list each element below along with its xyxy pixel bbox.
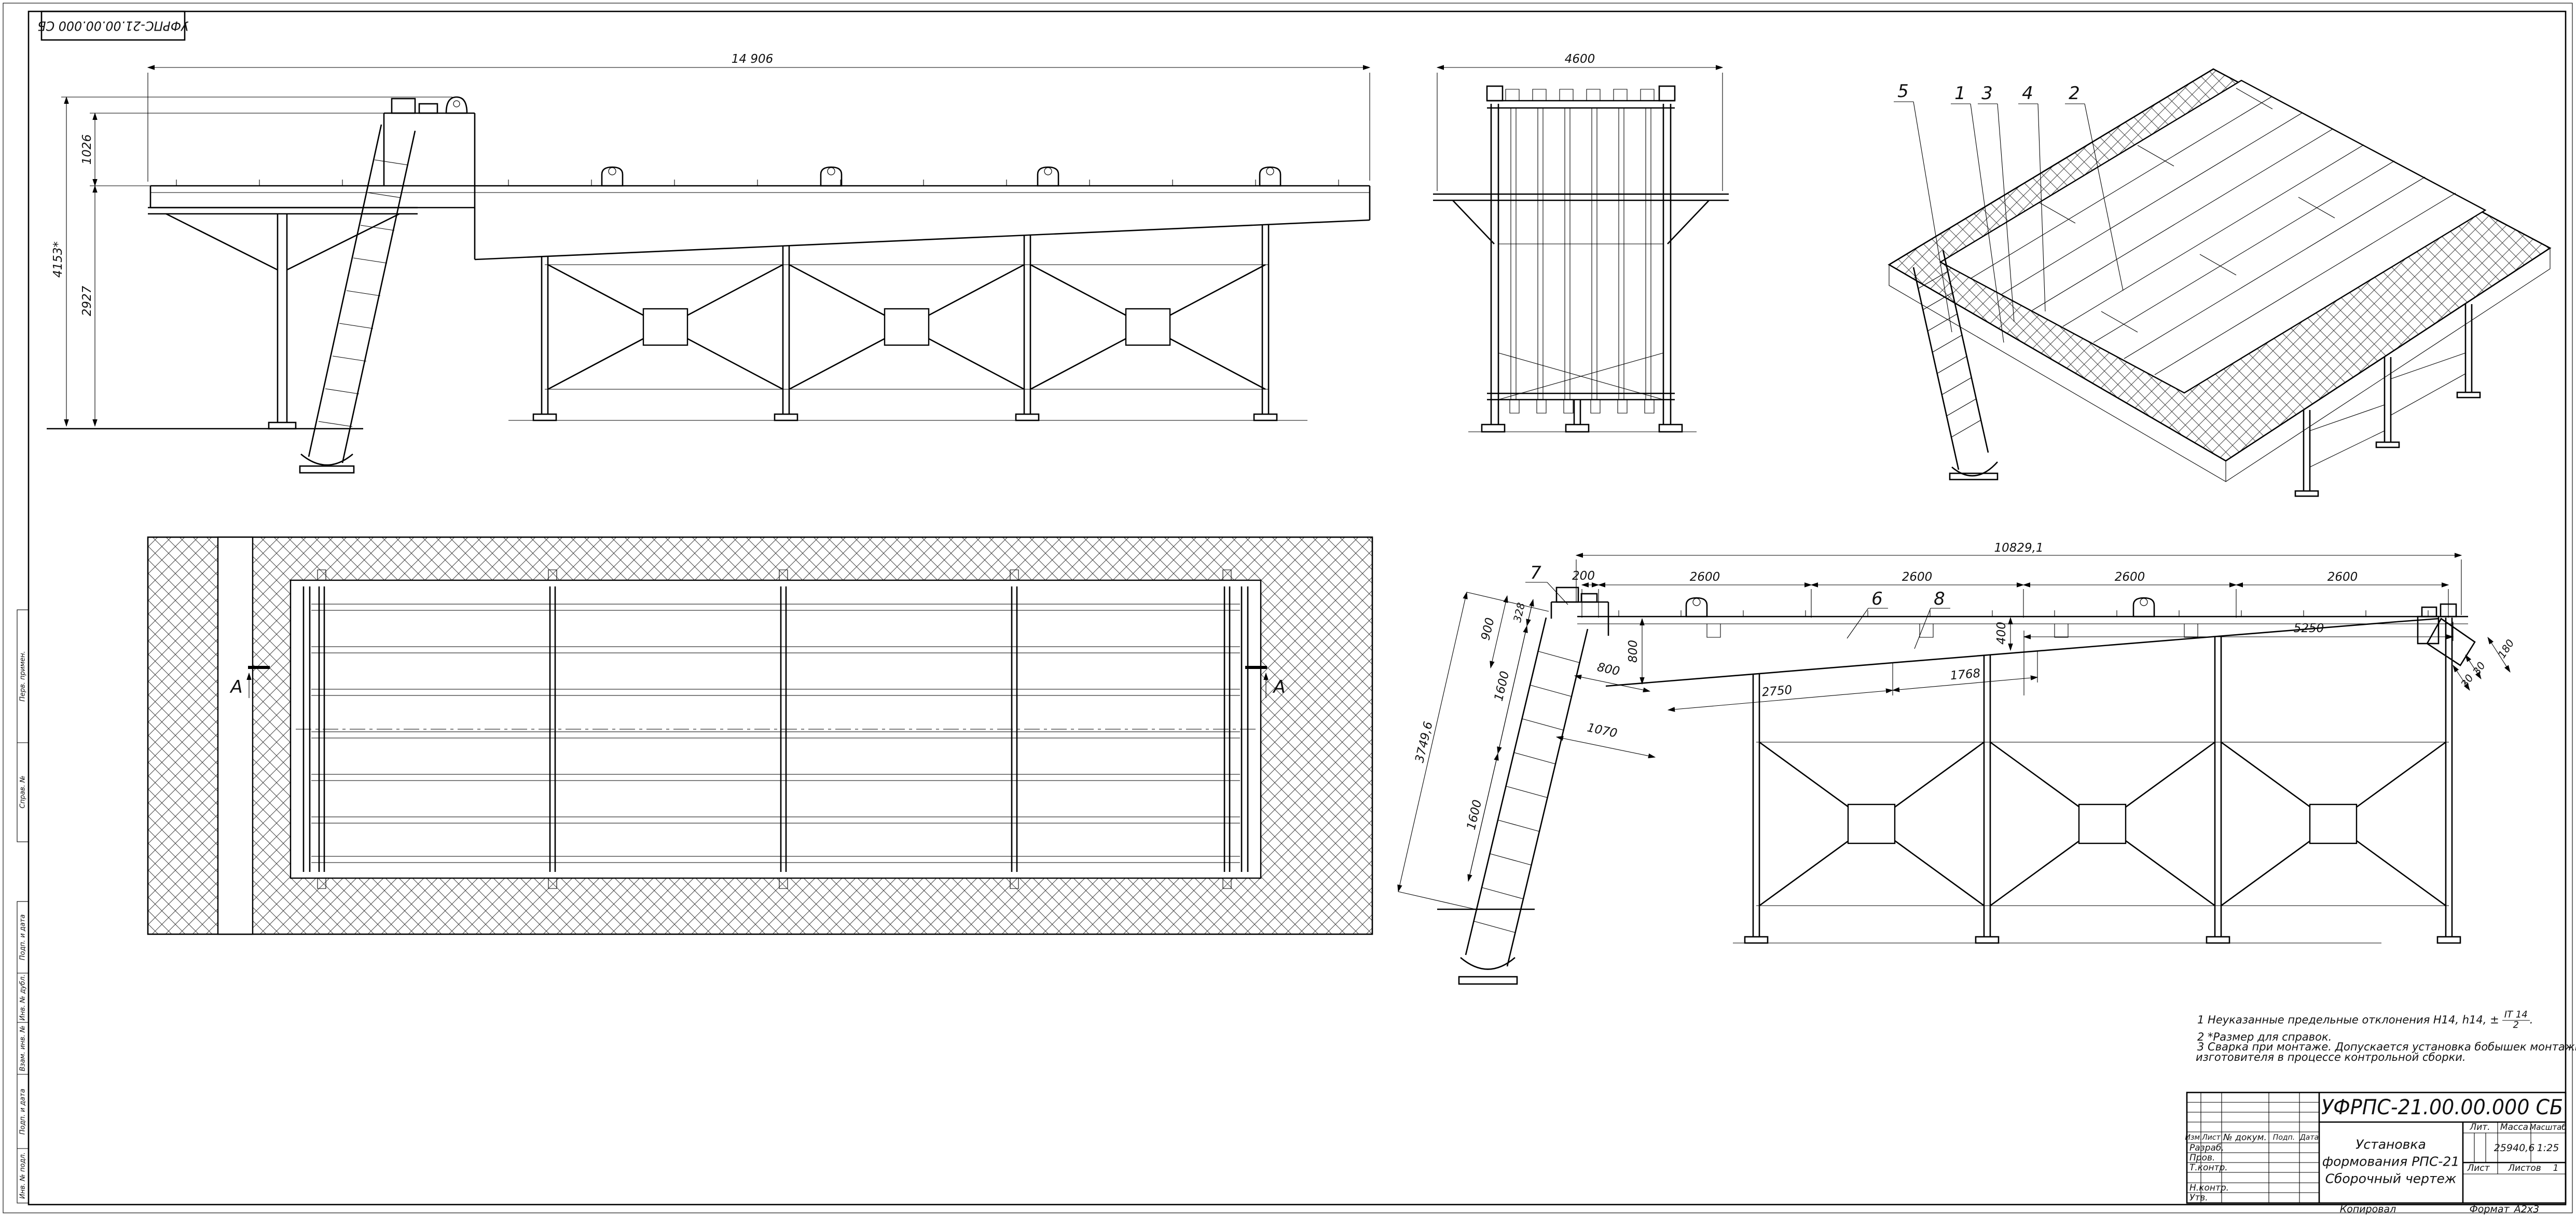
note-1: 1 Неуказанные предельные отклонения Н14,… bbox=[2197, 1010, 2533, 1031]
section-letter-right: А bbox=[1273, 677, 1285, 698]
margin-label-perv-primen: Перв. примен. bbox=[19, 651, 27, 702]
tb-row-prov: Пров. bbox=[2189, 1153, 2215, 1163]
dim-800-vert-label: 800 bbox=[1627, 640, 1640, 663]
tb-col-doc: № докум. bbox=[2223, 1132, 2267, 1143]
tb-row-razrab: Разраб. bbox=[2189, 1143, 2224, 1153]
callout-2: 2 bbox=[2069, 83, 2080, 104]
dim-total-label: 10829,1 bbox=[1994, 541, 2043, 555]
drawing-sheet: УФРПС-21.00.00.000 СБ Перв. примен. Спра… bbox=[0, 0, 2576, 1216]
tb-listov-label: Листов bbox=[2508, 1163, 2541, 1173]
callout-3: 3 bbox=[1981, 83, 1993, 104]
callout-7: 7 bbox=[1530, 563, 1541, 583]
callout-1: 1 bbox=[1954, 83, 1966, 104]
dim-2600-4-label: 2600 bbox=[2327, 570, 2358, 584]
dim-1768-label: 1768 bbox=[1950, 666, 1981, 682]
callout-8: 8 bbox=[1934, 589, 1945, 609]
dim-5250-label: 5250 bbox=[2294, 622, 2324, 635]
dim-400-label: 400 bbox=[1995, 622, 2008, 645]
dim-side-length-label: 14 906 bbox=[732, 52, 773, 66]
tb-lit-label: Лит. bbox=[2470, 1122, 2490, 1132]
note-1-fraction: IT 142 bbox=[2502, 1010, 2530, 1031]
dim-side-upper-label: 1026 bbox=[80, 134, 94, 165]
tb-name-line2: формования РПС-21 bbox=[2322, 1154, 2460, 1169]
tb-masshtab-label: Масштаб bbox=[2529, 1123, 2566, 1132]
tb-listov-value: 1 bbox=[2553, 1163, 2559, 1173]
callout-4: 4 bbox=[2022, 83, 2033, 104]
dim-2600-2-label: 2600 bbox=[1902, 570, 1933, 584]
section-letter-left: А bbox=[230, 677, 242, 698]
tb-designation: УФРПС-21.00.00.000 СБ bbox=[2321, 1096, 2563, 1119]
tb-col-podp: Подп. bbox=[2273, 1133, 2295, 1142]
side-elevation-view bbox=[47, 67, 1370, 473]
callout-6: 6 bbox=[1871, 589, 1883, 609]
corner-stamp: УФРПС-21.00.00.000 СБ bbox=[37, 19, 188, 34]
note-3-line2: изготовителя в процессе контрольной сбор… bbox=[2196, 1051, 2466, 1063]
dim-side-lower-label: 2927 bbox=[80, 286, 94, 317]
dim-2600-1-label: 2600 bbox=[1690, 570, 1720, 584]
callout-5: 5 bbox=[1897, 81, 1909, 102]
dim-2750-label: 2750 bbox=[1761, 683, 1793, 699]
margin-label-vzam-inv: Взам. инв. № bbox=[19, 1026, 27, 1071]
margin-label-sprav-no: Справ. № bbox=[19, 775, 27, 808]
tb-row-nkontr: Н.контр. bbox=[2189, 1183, 2229, 1193]
dim-200-label: 200 bbox=[1572, 569, 1595, 583]
footer-format-value: А2х3 bbox=[2514, 1204, 2539, 1215]
tb-row-tkontr: Т.контр. bbox=[2189, 1163, 2228, 1173]
dim-end-width-label: 4600 bbox=[1565, 52, 1595, 66]
tb-massa-value: 25940,6 bbox=[2494, 1142, 2535, 1154]
footer-format-label: Формат bbox=[2469, 1204, 2509, 1215]
isometric-view bbox=[1889, 69, 2550, 496]
margin-label-podp-data-2: Подп. и дата bbox=[19, 1089, 27, 1135]
note-1-text: 1 Неуказанные предельные отклонения Н14,… bbox=[2197, 1014, 2499, 1026]
margin-label-podp-data-1: Подп. и дата bbox=[19, 914, 27, 961]
tb-col-list: Лист bbox=[2202, 1133, 2220, 1142]
tb-massa-label: Масса bbox=[2500, 1122, 2528, 1132]
tb-name-line3: Сборочный чертеж bbox=[2325, 1171, 2457, 1186]
detail-elevation-view bbox=[1398, 555, 2510, 984]
margin-label-inv-dubl: Инв. № дубл. bbox=[19, 975, 27, 1021]
dim-2600-3-label: 2600 bbox=[2115, 570, 2145, 584]
plan-view bbox=[148, 537, 1372, 934]
margin-label-inv-podl: Инв. № подл. bbox=[19, 1152, 27, 1199]
tb-col-data: Дата bbox=[2300, 1133, 2319, 1142]
drawing-linework bbox=[0, 0, 2576, 1216]
footer-copied: Копировал bbox=[2340, 1204, 2396, 1215]
tb-name-line1: Установка bbox=[2355, 1137, 2426, 1152]
tb-row-utv: Утв. bbox=[2189, 1193, 2208, 1203]
tb-col-izm: Изм. bbox=[2185, 1133, 2202, 1142]
tb-list-label: Лист bbox=[2467, 1163, 2489, 1173]
dim-side-height-label: 4153* bbox=[51, 241, 65, 278]
tb-masshtab-value: 1:25 bbox=[2537, 1142, 2559, 1154]
end-view bbox=[1433, 67, 1729, 432]
